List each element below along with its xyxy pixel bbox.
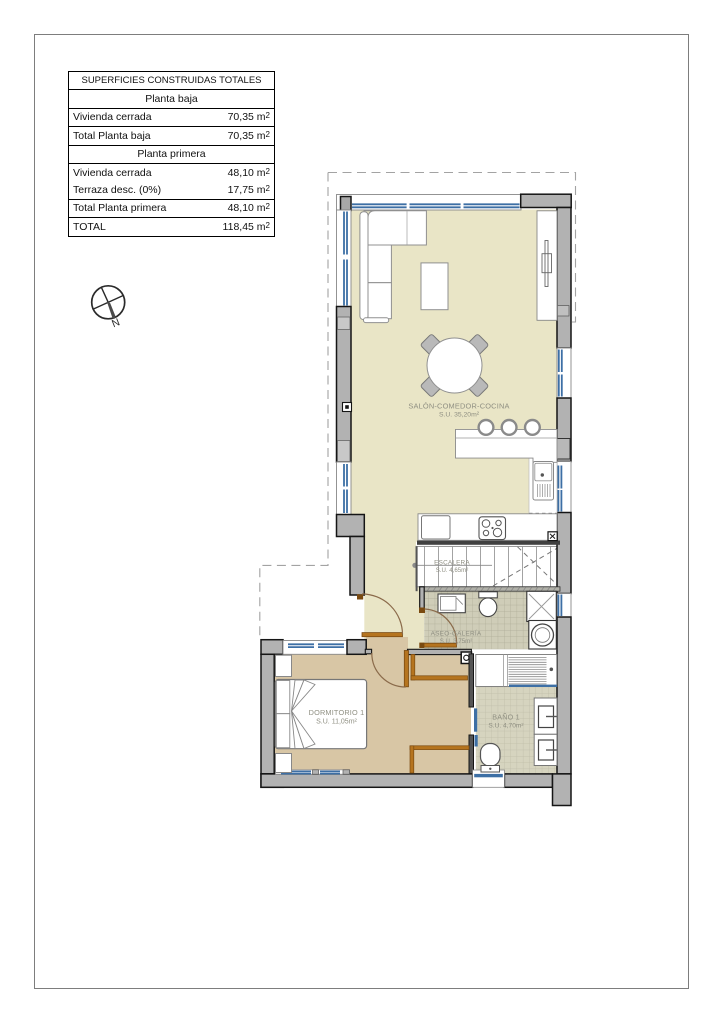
svg-text:BAÑO 1: BAÑO 1 — [492, 713, 520, 722]
svg-text:S.U. 4,65m²: S.U. 4,65m² — [436, 567, 469, 574]
svg-text:ASEO-GALERÍA: ASEO-GALERÍA — [431, 629, 482, 638]
svg-text:N: N — [110, 316, 122, 330]
svg-text:ESCALERA: ESCALERA — [434, 560, 470, 567]
svg-text:S.U. 3,75m²: S.U. 3,75m² — [440, 638, 473, 645]
svg-text:S.U. 4,70m²: S.U. 4,70m² — [488, 723, 524, 730]
svg-text:DORMITORIO 1: DORMITORIO 1 — [309, 708, 365, 717]
svg-text:S.U. 11,05m²: S.U. 11,05m² — [316, 719, 357, 726]
svg-text:SALÓN-COMEDOR-COCINA: SALÓN-COMEDOR-COCINA — [408, 402, 509, 411]
svg-text:S.U. 35,20m²: S.U. 35,20m² — [439, 412, 480, 419]
